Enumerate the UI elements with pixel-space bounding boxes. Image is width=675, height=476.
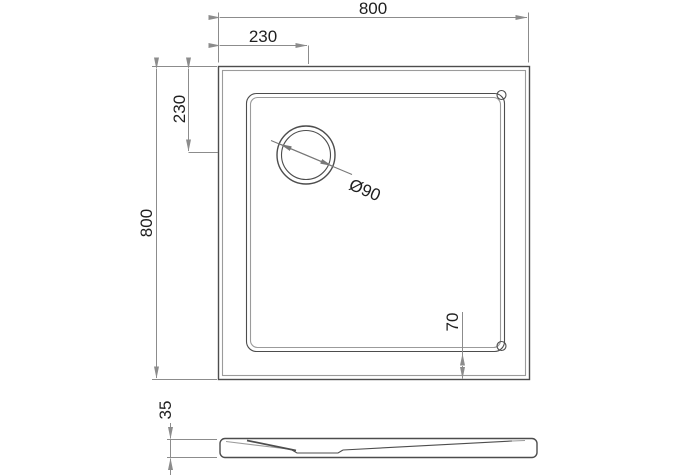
dim-drain-diameter: Ø90 bbox=[271, 141, 383, 206]
profile-view bbox=[220, 439, 537, 458]
technical-drawing: 800 230 800 230 Ø90 bbox=[0, 0, 675, 476]
dim-label-overall-height: 800 bbox=[137, 209, 156, 237]
plan-view bbox=[219, 67, 530, 380]
tray-outer-edge bbox=[219, 67, 530, 380]
diameter-arrow bbox=[306, 155, 332, 166]
dim-label-basin-rim-offset: 70 bbox=[443, 313, 462, 332]
profile-basin-slope-right bbox=[343, 441, 512, 450]
dimensions: 800 230 800 230 Ø90 bbox=[137, 0, 529, 475]
profile-rim-edge-right bbox=[512, 441, 525, 442]
profile-basin-slope-left bbox=[247, 441, 296, 451]
dim-label-overall-width: 800 bbox=[359, 0, 387, 18]
corner-detail-top-right bbox=[497, 91, 506, 100]
dim-label-tray-thickness: 35 bbox=[156, 401, 175, 420]
dim-drain-offset-y: 230 bbox=[170, 69, 218, 153]
basin-inner-edge bbox=[251, 98, 501, 348]
drawing-canvas: 800 230 800 230 Ø90 bbox=[0, 0, 675, 476]
dim-drain-offset-x: 230 bbox=[220, 27, 309, 64]
dim-basin-rim-offset: 70 bbox=[443, 312, 463, 379]
profile-drain-recess bbox=[292, 450, 343, 453]
dim-tray-thickness: 35 bbox=[156, 401, 217, 475]
diameter-arrow bbox=[280, 144, 306, 155]
tray-inner-edge bbox=[223, 71, 526, 376]
dim-label-drain-offset-y: 230 bbox=[170, 95, 189, 123]
basin-outer-edge bbox=[247, 94, 505, 352]
dim-label-drain-diameter: Ø90 bbox=[346, 175, 383, 205]
dim-label-drain-offset-x: 230 bbox=[249, 27, 277, 46]
